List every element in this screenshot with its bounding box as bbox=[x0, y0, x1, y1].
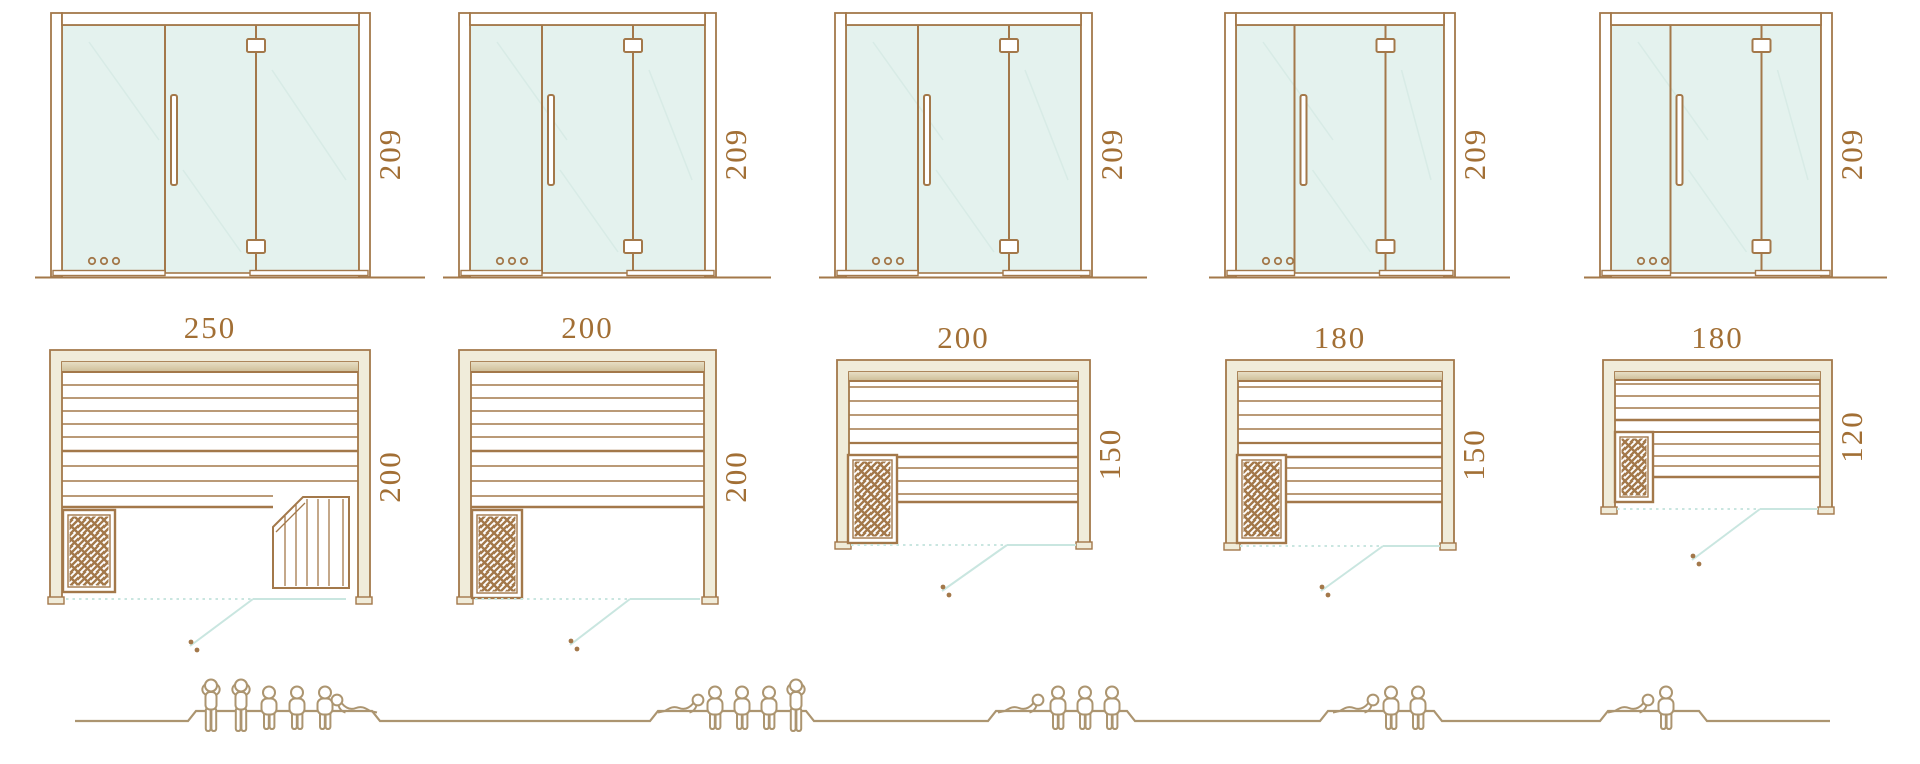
dimension-label: 200 bbox=[372, 450, 407, 503]
door-elevation-1: 209 bbox=[35, 13, 425, 278]
hinge-icon bbox=[1377, 240, 1395, 253]
door-handle bbox=[1677, 95, 1683, 185]
technical-drawing-host: 2092092092092092502002002002001501801501… bbox=[0, 0, 1920, 764]
person-seated-icon bbox=[1411, 687, 1426, 730]
wall-shadow-strip bbox=[1238, 372, 1442, 381]
person-standing-icon bbox=[787, 680, 804, 732]
door-handle-dot bbox=[947, 593, 952, 598]
wall-foot bbox=[1601, 507, 1617, 514]
person-lying-icon bbox=[658, 695, 703, 713]
dimension-label: 250 bbox=[184, 310, 237, 345]
door-frame-post bbox=[705, 13, 716, 277]
person-seated-icon bbox=[708, 687, 723, 730]
door-handle-dot bbox=[1697, 562, 1702, 567]
dimension-label: 180 bbox=[1691, 320, 1744, 355]
door-sill bbox=[1380, 271, 1454, 276]
plan-view-3: 200150 bbox=[835, 320, 1127, 597]
person-lying-icon bbox=[998, 695, 1043, 713]
capacity-group-2 bbox=[658, 680, 805, 732]
door-sill bbox=[1003, 271, 1090, 276]
wall-foot bbox=[1076, 542, 1092, 549]
hinge-icon bbox=[1753, 39, 1771, 52]
door-swing bbox=[475, 599, 700, 651]
person-seated-icon bbox=[762, 687, 777, 730]
door-sill bbox=[1227, 271, 1295, 276]
capacity-group-1 bbox=[202, 680, 377, 732]
door-handle bbox=[171, 95, 177, 185]
dimension-label: 209 bbox=[1457, 128, 1492, 181]
person-standing-icon bbox=[232, 680, 249, 732]
dimension-label: 200 bbox=[718, 450, 753, 503]
hinge-icon bbox=[1000, 240, 1018, 253]
wall-foot bbox=[1818, 507, 1834, 514]
step-bench bbox=[273, 497, 349, 588]
dimension-label: 150 bbox=[1456, 428, 1491, 481]
door-handle-dot bbox=[569, 639, 574, 644]
plan-view-2: 200200 bbox=[457, 310, 753, 651]
door-swing-line bbox=[1321, 546, 1383, 591]
bench-profile-line bbox=[75, 711, 1830, 721]
door-sill bbox=[461, 271, 542, 276]
capacity-row bbox=[75, 680, 1830, 732]
door-swing-line bbox=[942, 545, 1007, 591]
heater-icon bbox=[63, 510, 115, 592]
hinge-icon bbox=[1000, 39, 1018, 52]
person-lying-icon bbox=[1333, 695, 1378, 713]
wall-foot bbox=[1440, 543, 1456, 550]
heater-icon bbox=[472, 510, 522, 598]
door-sill bbox=[1602, 271, 1671, 276]
door-swing-line bbox=[1692, 509, 1760, 560]
capacity-group-4 bbox=[1333, 687, 1426, 730]
heater-icon bbox=[1237, 455, 1286, 543]
person-seated-icon bbox=[1659, 687, 1674, 730]
person-seated-icon bbox=[1384, 687, 1399, 730]
wall-foot bbox=[702, 597, 718, 604]
door-elevation-5: 209 bbox=[1584, 13, 1887, 278]
glass-panels bbox=[846, 25, 1081, 273]
person-lying-icon bbox=[1608, 695, 1653, 713]
dimension-label: 209 bbox=[1834, 128, 1869, 181]
person-seated-icon bbox=[1105, 687, 1120, 730]
door-swing-line bbox=[570, 599, 630, 645]
dimension-label: 120 bbox=[1834, 410, 1869, 463]
door-frame-post bbox=[459, 13, 470, 277]
hinge-icon bbox=[1753, 240, 1771, 253]
door-swing bbox=[851, 545, 1076, 597]
door-swing bbox=[1617, 509, 1818, 566]
door-frame-post bbox=[1821, 13, 1832, 277]
door-sill bbox=[53, 271, 165, 276]
door-handle-dot bbox=[195, 648, 200, 653]
door-elevation-2: 209 bbox=[443, 13, 771, 278]
wall-foot bbox=[457, 597, 473, 604]
dimension-label: 209 bbox=[718, 128, 753, 181]
person-seated-icon bbox=[262, 687, 277, 730]
door-frame-top-rail bbox=[846, 13, 1081, 25]
person-lying-icon bbox=[332, 695, 377, 713]
door-handle bbox=[924, 95, 930, 185]
glass-panels bbox=[1236, 25, 1444, 273]
wall-foot bbox=[356, 597, 372, 604]
hinge-icon bbox=[247, 39, 265, 52]
capacity-group-5 bbox=[1608, 687, 1674, 730]
glass-panels bbox=[470, 25, 705, 273]
capacity-group-3 bbox=[998, 687, 1120, 730]
wall-shadow-strip bbox=[1615, 372, 1820, 380]
hinge-icon bbox=[624, 39, 642, 52]
wall-shadow-strip bbox=[471, 362, 704, 372]
door-handle bbox=[548, 95, 554, 185]
dimension-label: 180 bbox=[1314, 320, 1367, 355]
hinge-icon bbox=[1377, 39, 1395, 52]
heater-icon bbox=[1615, 432, 1653, 502]
door-elevation-4: 209 bbox=[1209, 13, 1510, 278]
person-seated-icon bbox=[735, 687, 750, 730]
person-standing-icon bbox=[202, 680, 219, 732]
dimension-label: 200 bbox=[561, 310, 614, 345]
dimension-label: 209 bbox=[1094, 128, 1129, 181]
door-sill bbox=[837, 271, 918, 276]
plan-view-4: 180150 bbox=[1224, 320, 1491, 597]
dimension-label: 150 bbox=[1092, 428, 1127, 481]
wall-foot bbox=[48, 597, 64, 604]
door-handle-dot bbox=[575, 647, 580, 652]
glass-panels bbox=[62, 25, 359, 273]
sauna-size-comparison-drawing: 2092092092092092502002002002001501801501… bbox=[0, 0, 1920, 764]
dimension-label: 209 bbox=[372, 128, 407, 181]
door-swing bbox=[1240, 546, 1440, 597]
door-handle-dot bbox=[1691, 554, 1696, 559]
door-frame-post bbox=[51, 13, 62, 277]
sauna-technical-drawing: 2092092092092092502002002002001501801501… bbox=[0, 0, 1920, 764]
person-seated-icon bbox=[1078, 687, 1093, 730]
hinge-icon bbox=[247, 240, 265, 253]
plan-view-1: 250200 bbox=[48, 310, 407, 652]
door-frame-post bbox=[1225, 13, 1236, 277]
door-frame-top-rail bbox=[1236, 13, 1444, 25]
door-sill bbox=[1756, 271, 1831, 276]
hinge-icon bbox=[624, 240, 642, 253]
door-swing-line bbox=[190, 599, 253, 646]
door-frame-post bbox=[359, 13, 370, 277]
door-handle-dot bbox=[1326, 593, 1331, 598]
person-seated-icon bbox=[290, 687, 305, 730]
wall-shadow-strip bbox=[849, 372, 1078, 381]
wall-shadow-strip bbox=[62, 362, 358, 372]
door-frame-post bbox=[1081, 13, 1092, 277]
door-frame-post bbox=[1444, 13, 1455, 277]
door-frame-post bbox=[1600, 13, 1611, 277]
person-seated-icon bbox=[1051, 687, 1066, 730]
door-swing bbox=[66, 599, 346, 652]
plan-view-5: 180120 bbox=[1601, 320, 1869, 566]
door-handle-dot bbox=[189, 640, 194, 645]
heater-icon bbox=[848, 455, 897, 543]
door-handle bbox=[1301, 95, 1307, 185]
door-frame-top-rail bbox=[1611, 13, 1821, 25]
door-elevation-3: 209 bbox=[819, 13, 1147, 278]
person-seated-icon bbox=[318, 687, 333, 730]
glass-panels bbox=[1611, 25, 1821, 273]
door-handle-dot bbox=[941, 585, 946, 590]
door-frame-top-rail bbox=[470, 13, 705, 25]
door-handle-dot bbox=[1320, 585, 1325, 590]
door-frame-top-rail bbox=[62, 13, 359, 25]
door-sill bbox=[250, 271, 368, 276]
door-frame-post bbox=[835, 13, 846, 277]
door-sill bbox=[627, 271, 714, 276]
dimension-label: 200 bbox=[937, 320, 990, 355]
